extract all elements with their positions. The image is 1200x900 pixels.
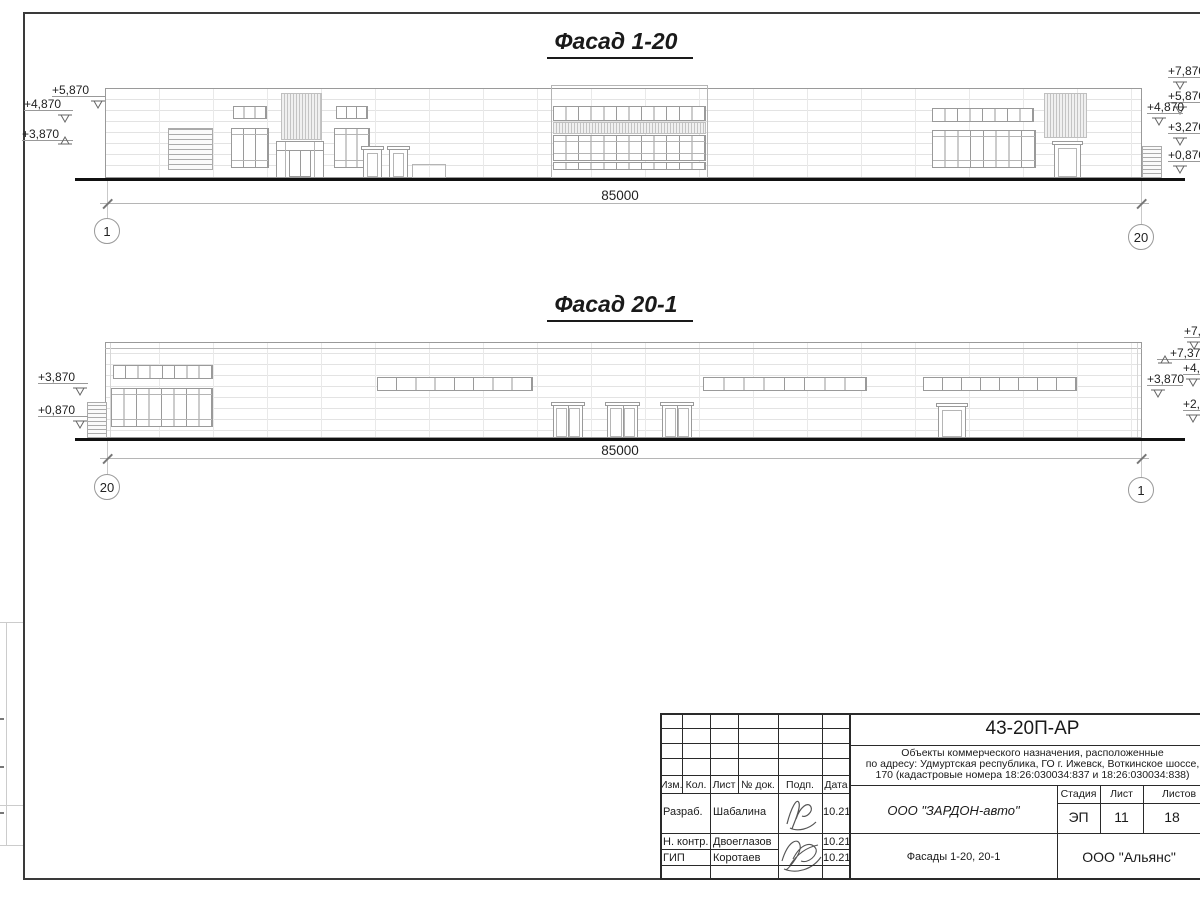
window-band [336,106,368,119]
panel-joint [1077,343,1078,437]
door-leaf [556,408,567,437]
window [932,130,1036,168]
door [389,149,408,178]
panel-joint [375,343,376,437]
door-leaf [1058,148,1077,177]
door-leaf [393,153,404,177]
window-transom [112,394,212,395]
elevation-mark-arrow [1150,385,1166,403]
elevation-mark-arrow [1151,113,1167,131]
panel-joint [537,89,538,177]
window-band [233,106,267,119]
elevation-mark-label: +4,870 [1147,100,1200,113]
col-kol: Кол. [682,779,710,791]
window-band [553,162,706,170]
panel-joint [159,89,160,177]
col-podp: Подп. [778,779,822,791]
row-name: Коротаев [713,852,761,865]
panel-joint [915,343,916,437]
dimension-label-facade-20-1: 85000 [560,443,680,459]
door-leaf [665,408,676,437]
elevation-mark-label: +7,870 [1184,324,1200,337]
elevation-mark-label: +0,870 [1168,148,1200,161]
titleblock-line [778,713,779,878]
titleblock-line [738,713,739,793]
siding-line [106,397,1141,398]
panel-joint [267,343,268,437]
signature-gip [778,833,824,880]
panel-joint [321,343,322,437]
sheets-value: 18 [1143,809,1200,825]
panel-joint [645,343,646,437]
ground-line [75,438,1185,441]
door [938,406,966,438]
titleblock-line [660,878,1200,880]
row-date: 10.21 [823,806,851,819]
elevation-mark-arrow [1172,161,1188,179]
door-centerline [568,406,569,437]
axis-bubble-1: 1 [1128,477,1154,503]
siding-line [106,375,1141,376]
window-transom [933,136,1035,137]
door-leaf [624,408,636,437]
window-transom [112,419,212,420]
window-transom [232,134,268,135]
panel-joint [699,343,700,437]
elevation-mark-label: +3,870 [22,127,82,140]
titleblock-line [710,713,711,878]
elevation-mark-arrow [1157,351,1173,369]
titleblock-line [850,745,1200,746]
window [231,128,269,168]
elevation-mark-label: +0,870 [38,403,98,416]
elevation-mark-arrow [57,132,73,150]
col-izm: Изм. [660,779,682,791]
panel-joint [483,89,484,177]
axis-bubble-1: 1 [94,218,120,244]
titleblock-line [1057,785,1058,880]
panel-joint [753,89,754,177]
col-data: Дата [822,779,850,791]
titleblock-line [1057,803,1200,804]
titleblock-line [822,849,850,850]
project-description-line: 170 (кадастровые номера 18:26:030034:837… [850,769,1200,781]
door-leaf [610,408,622,437]
sectional-door [168,128,213,170]
drawing-title: Фасады 1-20, 20-1 [852,851,1055,864]
stage-value: ЭП [1057,809,1100,825]
titleblock-line [682,713,683,793]
window [553,135,706,161]
window-band [113,365,213,379]
parapet-line [105,348,1142,349]
sheet-label: Лист [1100,788,1143,800]
organization-name: ООО "Альянс" [1059,849,1199,865]
elevation-mark-label: +7,870 [1168,64,1200,77]
company-name: ООО "ЗАРДОН-авто" [852,804,1055,819]
louver-stack [1142,146,1162,178]
drawing-sheet: { "sheet": { "facades": [ { "title": "Фа… [0,0,1200,900]
window-transom [933,160,1035,161]
extension-line [107,181,108,218]
titleblock-line [660,833,1200,834]
doc-code: 43-20П-АР [850,718,1200,740]
window-transom [232,160,268,161]
elevation-mark-label: +4,870 [24,97,84,110]
row-date: 10.21 [823,836,851,849]
stage-label: Стадия [1057,788,1100,800]
door-leaf [569,408,580,437]
elevation-mark-arrow [90,96,106,114]
elevation-mark-arrow [72,416,88,434]
titleblock-line [822,713,823,878]
titleblock-line [1100,785,1101,833]
titleblock-line [660,713,662,880]
row-date: 10.21 [823,852,851,865]
dimension-label-facade-1-20: 85000 [560,188,680,204]
panel-joint [537,343,538,437]
panel-joint [915,89,916,177]
mullion [314,142,315,177]
row-name: Шабалина [713,806,766,819]
dimension-line [100,458,1149,459]
double-door [607,405,638,438]
titleblock-line [660,713,1200,715]
door-leaf [942,410,962,437]
panel-joint [861,89,862,177]
mullion [285,142,286,177]
elevation-mark-label: +5,870 [52,83,112,96]
panel-joint [213,343,214,437]
axis-bubble-20: 20 [94,474,120,500]
window-band [932,108,1034,122]
titleblock-line [849,713,851,880]
window-band [553,106,706,121]
row-role: ГИП [663,852,685,865]
panel-joint [591,343,592,437]
window-transom [554,153,705,154]
elevation-mark-label: +2,170 [1183,397,1200,410]
door-leaf [678,408,689,437]
door-centerline [300,151,301,176]
ribbon-window [703,377,867,391]
louver-panel [281,93,322,140]
louver-panel [1044,93,1087,138]
door [1054,144,1081,178]
siding-line [106,364,1141,365]
sheet-value: 11 [1100,809,1143,825]
window-transom [554,141,705,142]
door-leaf [367,153,378,177]
entrance-door [276,141,324,178]
double-door [289,150,311,177]
row-role: Н. контр. [663,836,708,849]
elevation-mark-label: +3,870 [38,370,98,383]
col-ndok: № док. [738,779,778,791]
double-door [553,405,583,438]
sheets-label: Листов [1143,788,1200,800]
elevation-mark-label: +7,370 [1170,346,1200,359]
double-door [662,405,692,438]
axis-bubble-20: 20 [1128,224,1154,250]
panel-joint [213,89,214,177]
dimension-line [100,203,1149,204]
titleblock-line [850,785,1200,786]
elevation-mark-arrow [72,383,88,401]
window [111,388,213,427]
door [363,149,382,178]
panel-joint [1131,89,1132,177]
corner-trim [1137,343,1138,437]
door-centerline [623,406,624,437]
door-centerline [677,406,678,437]
elevation-mark-label: +3,270 [1168,120,1200,133]
louver-band [553,122,706,134]
low-wall [412,164,446,178]
row-name: Двоеглазов [713,836,771,849]
siding-line [106,353,1141,354]
window-transom [335,134,369,135]
ribbon-window [377,377,533,391]
ribbon-window [923,377,1077,391]
titleblock-line [1143,785,1144,833]
panel-joint [807,89,808,177]
signature-razrab [782,795,820,838]
titleblock-line [660,849,778,850]
ground-line [75,178,1185,181]
elevation-mark-label: +3,870 [1147,372,1200,385]
panel-joint [1131,343,1132,437]
elevation-mark-arrow [1185,410,1200,428]
row-role: Разраб. [663,806,703,819]
elevation-mark-arrow [57,110,73,128]
col-list: Лист [710,779,738,791]
